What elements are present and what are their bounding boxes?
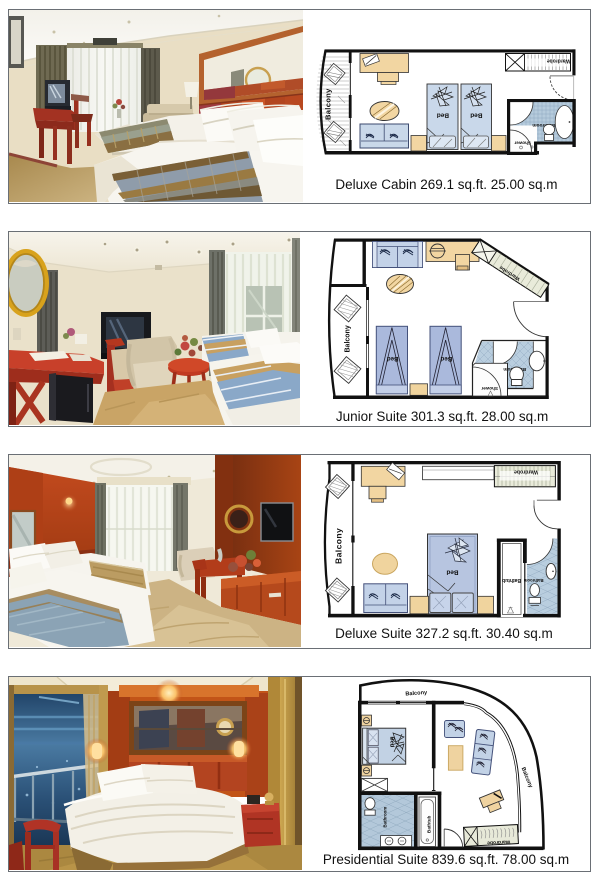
svg-text:Bed: Bed — [387, 355, 399, 362]
svg-text:Balcony: Balcony — [324, 88, 333, 120]
svg-text:Balcony: Balcony — [334, 528, 344, 564]
svg-text:Balcony: Balcony — [345, 325, 352, 352]
svg-text:Wardrobe: Wardrobe — [547, 58, 570, 64]
svg-text:Balcony: Balcony — [520, 767, 534, 790]
svg-text:Wardrobe: Wardrobe — [514, 469, 538, 475]
svg-text:Bathroom: Bathroom — [383, 807, 388, 828]
svg-text:Balcony: Balcony — [405, 690, 428, 698]
svg-text:Bed: Bed — [437, 112, 449, 119]
svg-text:Shower: Shower — [514, 141, 531, 146]
svg-text:Bed: Bed — [446, 569, 458, 576]
svg-text:Bathroom: Bathroom — [523, 578, 543, 583]
svg-text:Bed: Bed — [470, 112, 482, 119]
svg-text:Shower: Shower — [481, 386, 498, 391]
svg-text:Bathtub: Bathtub — [502, 577, 521, 583]
svg-text:Bathtub: Bathtub — [427, 815, 432, 833]
svg-text:Wardrobe: Wardrobe — [487, 838, 511, 845]
svg-text:Bed: Bed — [440, 355, 452, 362]
